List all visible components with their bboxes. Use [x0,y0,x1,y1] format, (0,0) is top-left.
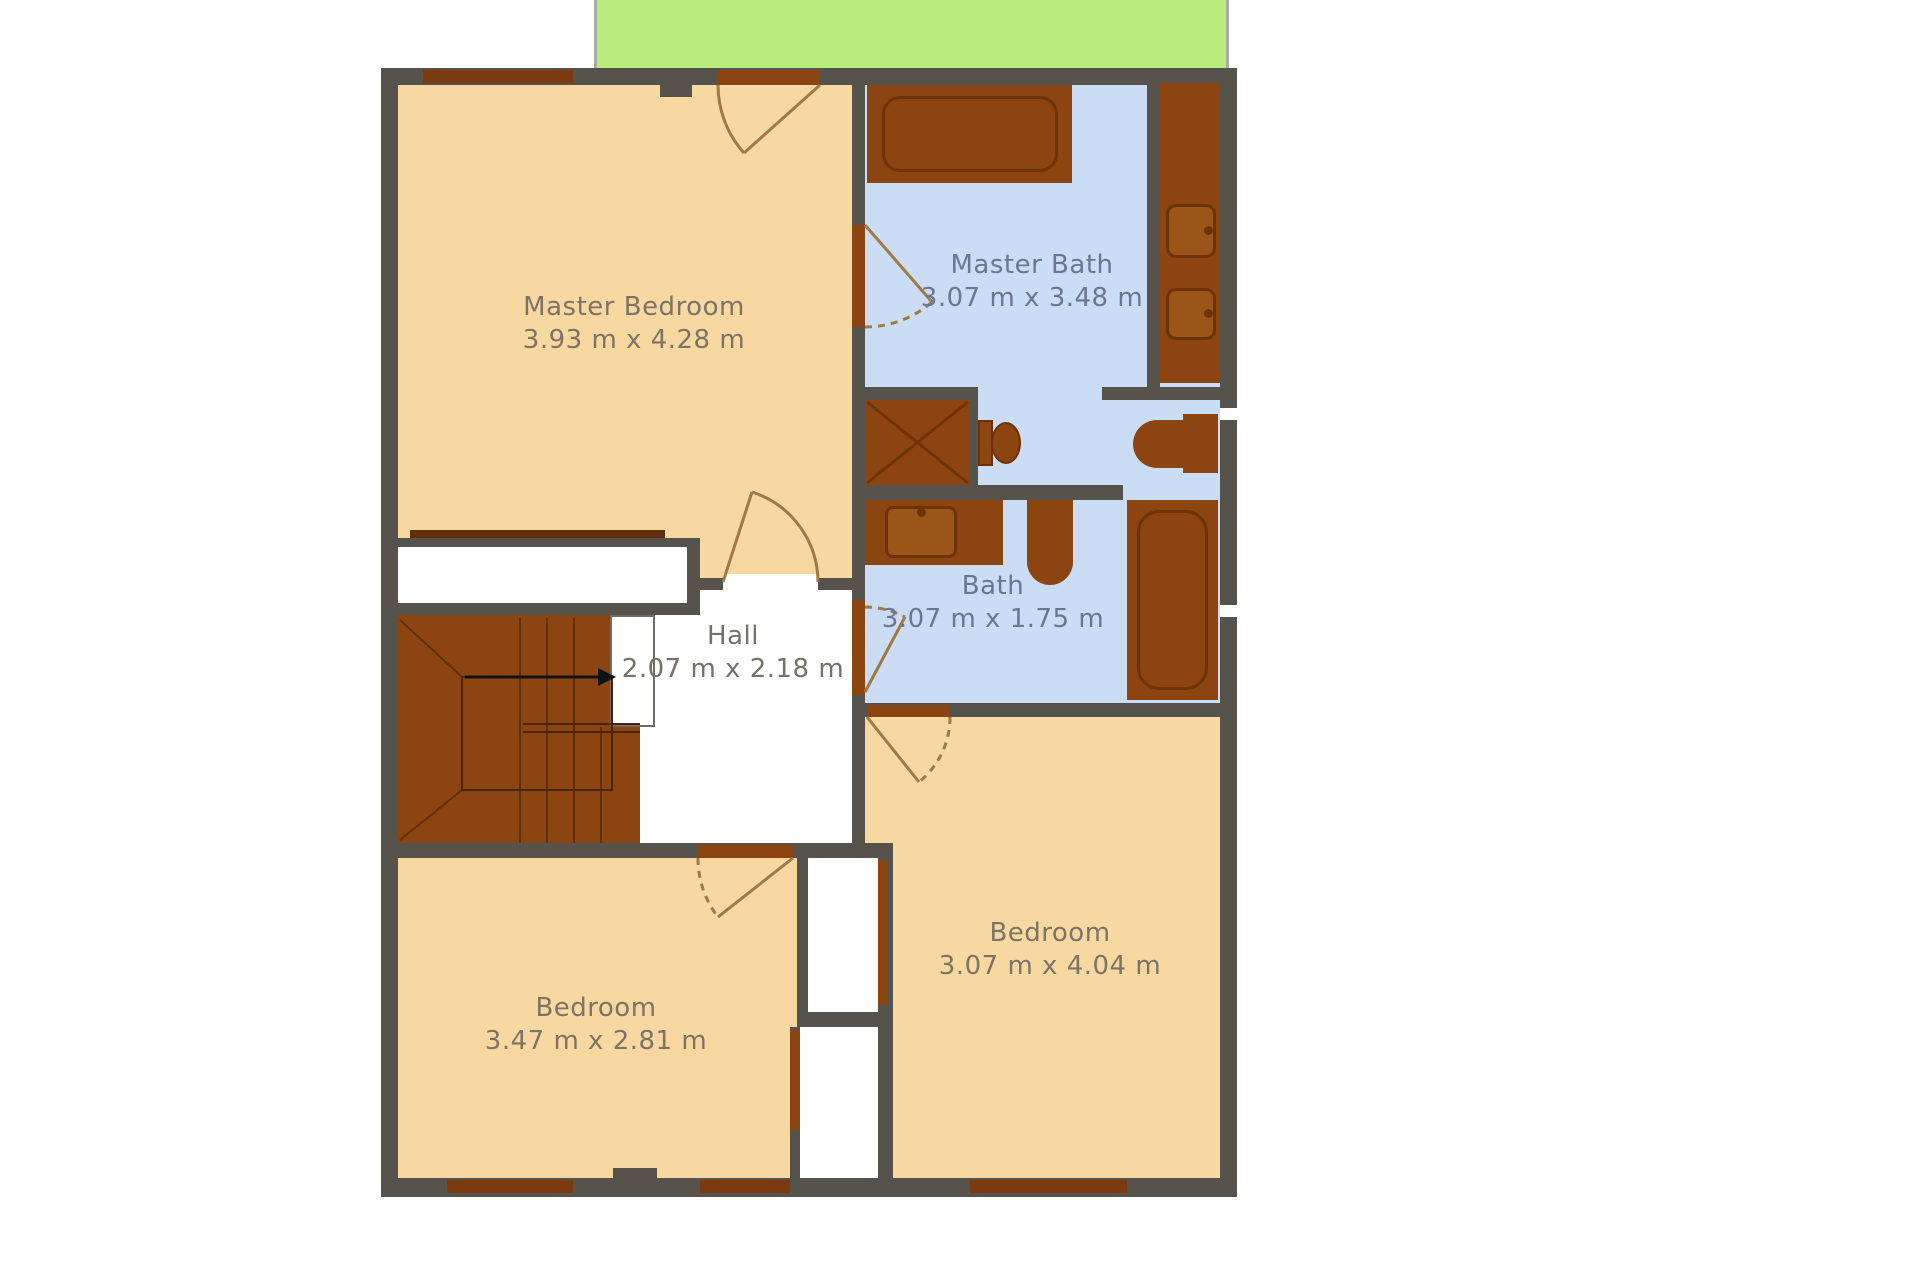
label-master-bath: Master Bath 3.07 m x 3.48 m [872,249,1192,315]
wall-shower-stub [970,400,978,490]
wall-closetcol-mid [797,1012,878,1027]
closet-right-bedroom [808,855,878,1012]
window-bedroom-right [970,1180,1127,1193]
room-dimensions: 3.47 m x 2.81 m [436,1025,756,1058]
wall-under-shower [865,485,1123,500]
wall-masterbath-vanity [1147,83,1160,387]
wall-closet-top [388,538,700,547]
room-name: Bedroom [890,917,1210,950]
toilet-bath-1-bowl [991,422,1021,464]
closet-left-bedroom [800,1027,878,1178]
sink-masterbath-1-faucet [1204,226,1213,235]
door-opening-bedroom-left [697,845,793,858]
room-dimensions: 3.93 m x 4.28 m [474,324,794,357]
window-right-wall-1 [1220,408,1237,420]
closet-door-bedroom-left [790,1030,800,1130]
wall-masterbedroom-right [852,85,865,843]
door-opening-terrace [718,70,820,85]
door-opening-masterbath [852,225,865,327]
shower-bath [865,400,970,485]
door-opening-bedroom-right [867,705,950,717]
wall-closet-bottom [381,603,700,615]
wall-stub-bottom [613,1168,657,1178]
label-master-bedroom: Master Bedroom 3.93 m x 4.28 m [474,291,794,357]
wall-right [1220,68,1237,1197]
room-name: Hall [573,620,893,653]
wall-closet-right [687,538,700,615]
window-bedroom-left-2 [700,1180,790,1193]
label-hall: Hall 2.07 m x 2.18 m [573,620,893,686]
wall-left [381,68,398,1197]
wall-stub-top [660,85,692,97]
label-bedroom-left: Bedroom 3.47 m x 2.81 m [436,992,756,1058]
bathtub-masterbath-basin [882,96,1058,172]
wall-closetcol-left [797,843,808,1027]
door-opening-masterbedroom-hall [723,574,818,590]
window-right-wall-2 [1220,605,1237,617]
closet-sliding-door-masterbedroom [410,530,665,538]
wall-masterbath-bottom-left [852,387,978,400]
sink-bath-faucet [917,508,926,517]
room-name: Master Bath [872,249,1192,282]
wall-bedrooms-top [381,843,893,858]
window-master-bedroom [423,70,573,83]
closet-door-bedroom-right [878,860,888,1005]
room-name: Bedroom [436,992,756,1025]
toilet-bath-2-bowl [1133,420,1183,468]
label-bedroom-right: Bedroom 3.07 m x 4.04 m [890,917,1210,983]
room-dimensions: 2.07 m x 2.18 m [573,653,893,686]
room-dimensions: 3.07 m x 4.04 m [890,950,1210,983]
terrace-green-area [594,0,1229,68]
floor-plan-canvas: Master Bedroom 3.93 m x 4.28 m Master Ba… [0,0,1920,1280]
sink-masterbath-2-faucet [1204,309,1213,318]
toilet-bath-2-tank [1183,414,1218,473]
window-bedroom-left-1 [447,1180,573,1193]
room-name: Master Bedroom [474,291,794,324]
room-name: Bath [833,570,1153,603]
master-bedroom-closet [398,547,687,603]
room-dimensions: 3.07 m x 3.48 m [872,282,1192,315]
wall-masterbath-bottom-right [1102,387,1220,400]
